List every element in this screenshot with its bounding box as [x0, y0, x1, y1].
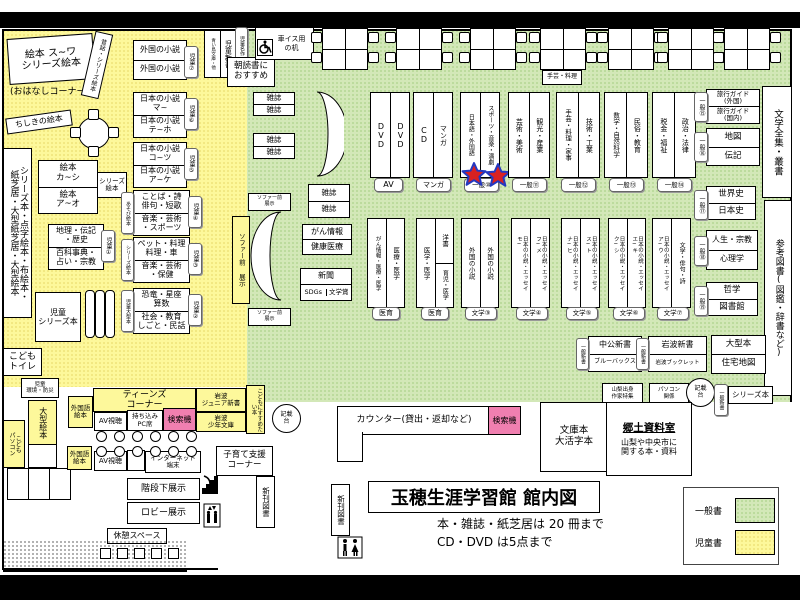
new-books-2: 新刊図書: [331, 484, 350, 536]
tag-ippan-19: 一般⑲: [694, 286, 708, 316]
shelf-foreign-novels-kids: 外国の小説 外国の小説: [133, 40, 187, 80]
tag-ippan-11: 一般⑪: [512, 178, 547, 192]
shelf-cd-manga: CD マンガ: [413, 92, 453, 178]
shelf-medical-2: 医学・医学 洋書 育児・医学: [416, 218, 454, 308]
service-counter[interactable]: カウンター(貸出・返却など): [337, 406, 491, 435]
tag-series-ehon-side: シリーズ絵本: [121, 239, 134, 281]
tag-ippan-18: 一般⑱: [694, 236, 708, 266]
rest-space-seat: [117, 548, 128, 559]
writing-stand-1: 記載 台: [272, 404, 301, 433]
tag-ippan-14: 一般⑭: [657, 178, 692, 192]
shelf-life-psychology: 人生・宗教 心理学: [706, 230, 758, 270]
stool: [96, 431, 107, 442]
paperback-large-print-room: 文庫本 大活字本: [540, 402, 608, 472]
chair: [586, 52, 597, 63]
shelf-magazines-2: 雑誌雑誌: [253, 133, 295, 159]
chair: [516, 52, 527, 63]
rest-space-seat: [168, 548, 179, 559]
stool: [114, 446, 125, 457]
shelf-kids-series: 児童 シリーズ本: [35, 292, 81, 342]
mini-label-shugei-ryori: 手芸・料理: [542, 70, 582, 85]
tag-jido-7: 児童⑦: [184, 46, 198, 78]
legend-general-label: 一般書: [695, 504, 722, 517]
tag-ippan-shinsho-2: 一般新書: [636, 338, 649, 370]
chair: [586, 32, 597, 43]
top-black-bar: [0, 12, 800, 28]
tag-iiku-1: 医育: [372, 307, 400, 320]
reading-table: [540, 28, 586, 70]
chair: [442, 52, 453, 63]
library-floor-map: 絵本 ス~ワ シリーズ絵本 (おはなしコーナー) 昔話・シリーズ絵本 ちしきの絵…: [0, 0, 800, 600]
stool: [96, 446, 107, 457]
stool: [150, 446, 161, 457]
wheelchair-icon: [257, 39, 273, 56]
shelf-iwanami-shonen: 岩波 少年文庫: [196, 412, 246, 432]
shelf-kotoba-poetry: ことば・詩 俳句・短歌 音楽・芸術 ・スポーツ: [133, 190, 190, 236]
chair: [70, 127, 81, 138]
tag-asobi-ehon: あそび絵本: [121, 192, 134, 234]
search-terminal-teens[interactable]: 検索機: [163, 408, 196, 431]
reading-table: [322, 28, 368, 70]
sofa-front-display-vertical: ソファー前 展示: [232, 216, 250, 304]
shelf-jp-essay-na: 日本の小説・エッセイ ナ~ヒ 日本の小説・エッセイ ス~ト: [561, 218, 600, 308]
legend-children-swatch: [735, 530, 775, 555]
tag-manga: マンガ: [416, 178, 451, 192]
tag-av: AV: [374, 178, 403, 192]
tag-ippan-16: 一般⑯: [694, 132, 708, 162]
shelf-iwanami-junior: 岩波 ジュニア新書: [196, 388, 246, 412]
shelf-newspaper: 新聞 SDGs 文学賞: [300, 268, 352, 301]
shelf-geography-history: 地理・伝記 ・歴史 百科事典・ 占い・宗教: [48, 224, 104, 270]
sofa-crescent-top: [312, 90, 344, 178]
stool: [168, 431, 179, 442]
shelf-travel-guides: 旅行ガイド (外国) 旅行ガイド (国内): [706, 89, 760, 124]
chair: [459, 32, 470, 43]
reading-table: [470, 28, 516, 70]
tag-jido-6: 児童⑥: [184, 98, 198, 130]
elevator-icon: [203, 503, 221, 528]
local-history-desc: 山梨や中央市に 関する本・資料: [609, 438, 689, 456]
shelf-art-tourism: 芸術・美術 観光・産業: [508, 92, 550, 178]
shelf-series-books: シリーズ本: [728, 386, 773, 404]
wall-bottom-left: [3, 568, 218, 570]
stool: [132, 431, 143, 442]
local-history-room: 郷土資料室 山梨や中央市に 関する本・資料: [606, 402, 692, 476]
sofa-crescent-mid: [250, 210, 286, 302]
chair: [516, 32, 527, 43]
tag-bungaku-7: 文学⑦: [657, 307, 689, 320]
shelf-kids-recommend: こどもにすすめたい本: [246, 385, 265, 434]
tag-jido-ogata: 児童大型本: [121, 290, 134, 332]
legend-children-label: 児童書: [695, 536, 722, 549]
legend-general-swatch: [735, 498, 775, 523]
sofa-front-display-b: ソファー前 展示: [248, 308, 291, 326]
tag-jido-4: 児童④: [188, 196, 202, 228]
stairs-icon: [200, 474, 220, 498]
local-history-title: 郷土資料室: [609, 422, 689, 434]
shelf-jp-essay-ku: 日本の小説・エッセイ ク~シ 日本の小説・エッセイ エ~キ: [608, 218, 646, 308]
shelf-jp-essay-mo: 日本の小説・エッセイ モ~ 日本の小説・エッセイ フ~メ: [511, 218, 550, 308]
shelf-math-education: 数学・自然科学 民俗・教育: [604, 92, 648, 178]
new-books-1: 新刊図書: [256, 476, 275, 528]
shelf-kids-environment: 児童 環境・防災: [21, 378, 59, 398]
bottom-black-bar: [0, 575, 800, 600]
tag-ippan-shinsho-3: 一般新書: [714, 384, 728, 416]
shelf-foreign-picture-books-1: 外国語 絵本: [68, 396, 93, 428]
tag-ippan-13: 一般⑬: [609, 178, 644, 192]
sofa-front-display-a: ソファー前 展示: [248, 193, 291, 211]
shelf-morning-reading: 朝読書に おすすめ: [227, 57, 275, 87]
chair: [459, 52, 470, 63]
reading-table: [608, 28, 654, 70]
counter-leg: [337, 432, 363, 462]
chair: [597, 32, 608, 43]
chair: [108, 127, 119, 138]
tag-ippan-17: 一般⑰: [694, 190, 708, 220]
tag-bungaku-5: 文学⑤: [566, 307, 598, 320]
shelf-philosophy-library: 哲学 図書館: [706, 282, 758, 316]
chair: [88, 109, 99, 120]
byod-pc-seat: 持ち込み PC席: [127, 410, 163, 431]
kids-round-table: [78, 117, 110, 149]
tag-jido-2: 児童②: [188, 294, 202, 326]
shelf-foreign-novels: 外国の小説 外国の小説: [461, 218, 499, 308]
under-stairs-display: 階段下展示: [127, 478, 200, 500]
shelf-maps-biography: 地図 伝記: [706, 128, 760, 166]
chair: [770, 32, 781, 43]
rest-space-seat: [100, 548, 111, 559]
shelf-jp-essay-a: 日本の小説・エッセイ ア~ウ 文学・俳句・詩: [652, 218, 691, 308]
pillar: [85, 290, 95, 338]
pillar: [105, 290, 115, 338]
shelf-iwanami-shinsho: 岩波新書 岩波ブックレット: [648, 336, 707, 372]
shelf-magazines-3: 雑誌雑誌: [308, 184, 350, 218]
tag-jido-1: 児童①: [101, 230, 115, 262]
tag-bungaku-6: 文学⑥: [613, 307, 645, 320]
chair: [368, 52, 379, 63]
stool: [186, 431, 197, 442]
shelf-literature-anthology: 文学全集・叢書: [762, 86, 792, 198]
rest-space-seat: [151, 548, 162, 559]
shelf-computer-books: パソコン 関係: [649, 383, 689, 404]
shelf-magazines-1: 雑誌雑誌: [253, 92, 295, 116]
shelf-jp-novels-ko: 日本の小説 コ~ツ 日本の小説 ア~ケ: [133, 142, 187, 188]
chair: [529, 32, 540, 43]
note-borrow-limit-av: CD・DVD は5点まで: [437, 533, 553, 550]
shelf-medical-1: がん情報・医療・医学 医療・医学: [367, 218, 405, 308]
chair: [385, 52, 396, 63]
chair: [597, 52, 608, 63]
av-viewing-1: AV視聴: [94, 412, 127, 431]
kids-toilet: こども トイレ: [3, 348, 42, 376]
chair: [368, 32, 379, 43]
map-title: 玉穂生涯学習館 館内図: [368, 481, 600, 513]
chair: [770, 52, 781, 63]
shelf-series-braille-kamishibai: シリーズ本・点字絵本・布絵本・ 紙芝居・大型紙芝居・大型絵本: [3, 148, 32, 318]
chair: [311, 32, 322, 43]
shelf-jp-novels-ma: 日本の小説 マ~ 日本の小説 テ~ホ: [133, 92, 187, 138]
reading-table: [668, 28, 714, 70]
chair: [713, 52, 724, 63]
search-terminal-main[interactable]: 検索機: [488, 406, 521, 435]
chair: [713, 32, 724, 43]
tag-iiku-2: 医育: [421, 307, 449, 320]
reading-table: [724, 28, 770, 70]
shelf-cancer-health: がん情報健康医療: [302, 224, 352, 255]
tag-ippan-shinsho-1: 一般新書: [576, 338, 589, 370]
stool: [168, 446, 179, 457]
stool: [186, 446, 197, 457]
shelf-large-books: 大型本 住宅地図: [711, 335, 766, 374]
tag-ippan-15: 一般⑮: [694, 92, 708, 122]
shelf-pets-cooking: ペット・料理 料理・車 音楽・芸術 ・保健: [133, 237, 190, 283]
note-borrow-limit-books: 本・雑誌・紙芝居は 20 冊まで: [437, 515, 604, 532]
restroom-icon: [337, 536, 363, 559]
stool: [114, 431, 125, 442]
bench-seat: [7, 468, 71, 500]
shelf-reference-books: 参考図書(図鑑・辞書など): [764, 200, 792, 396]
tag-bungaku-3: 文学③: [465, 307, 497, 320]
shelf-foreign-picture-books-2: 外国語 絵本: [67, 446, 92, 470]
rest-space-seat: [134, 548, 145, 559]
pillar: [95, 290, 105, 338]
childcare-support-corner: 子育て支援 コーナー: [216, 446, 273, 476]
stool: [150, 431, 161, 442]
tag-jido-3: 児童③: [188, 243, 202, 275]
tag-bungaku-4: 文学④: [516, 307, 548, 320]
stool: [132, 446, 143, 457]
tag-ippan-12: 一般⑫: [561, 178, 596, 192]
shelf-yamanashi-authors: 山梨出身 作家特集: [602, 383, 643, 404]
story-corner-label: (おはなしコーナー): [10, 84, 120, 97]
shelf-tax-politics: 税金・福祉 政治・法律: [652, 92, 696, 178]
tag-jido-5: 児童⑤: [184, 148, 198, 180]
chair: [657, 32, 668, 43]
shelf-picture-books-su-wa: 絵本 ス~ワ シリーズ絵本: [7, 33, 96, 85]
shelf-world-japan-history: 世界史 日本史: [706, 186, 756, 220]
shelf-picture-books-ka-a: 絵本 カ~シ 絵本 ア~オ: [38, 160, 98, 214]
lobby-display: ロビー展示: [127, 502, 200, 524]
chair: [442, 32, 453, 43]
kids-computer: こども パソコン: [3, 420, 25, 468]
chair: [385, 32, 396, 43]
chair: [311, 52, 322, 63]
chair: [88, 146, 99, 157]
shelf-dvd: DVD DVD: [370, 92, 410, 178]
shelf-craft-tech: 手芸・料理・家事 技術・工業: [556, 92, 600, 178]
shelf-chuko-shinsho: 中公新書 ブルーバックス: [588, 336, 642, 372]
shelf-dinosaur-society: 恐竜・星座 算数 社会・教育 しごと・民話: [133, 288, 190, 334]
chair: [529, 52, 540, 63]
reading-table: [396, 28, 442, 70]
chair: [657, 52, 668, 63]
